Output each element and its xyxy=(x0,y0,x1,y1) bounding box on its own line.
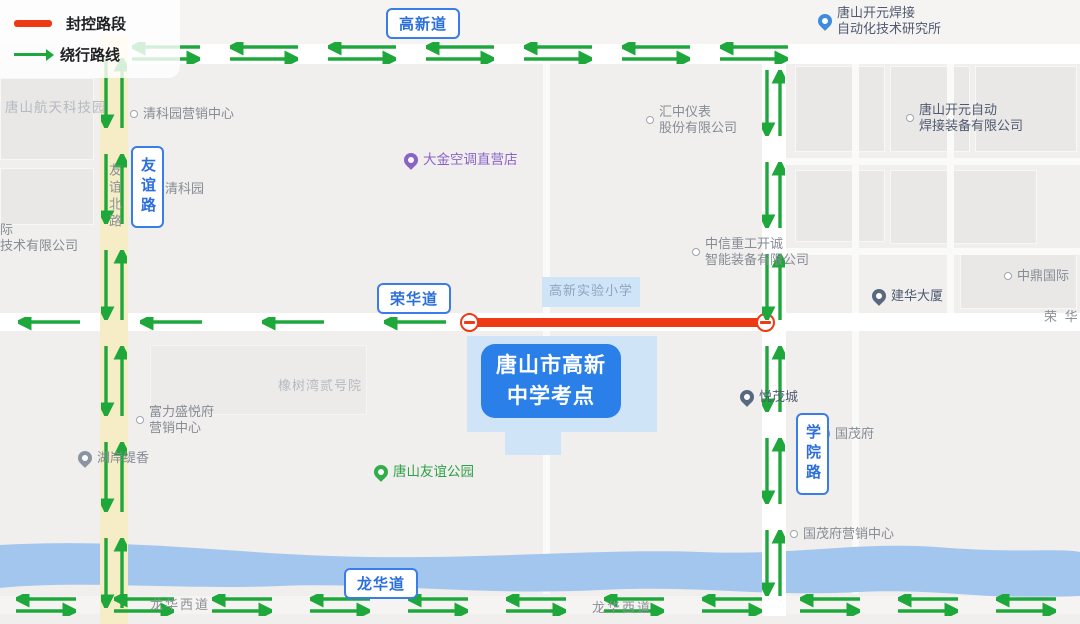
poi-label: 际技术有限公司 xyxy=(0,222,78,254)
exam-site-line2: 中学考点 xyxy=(481,381,621,412)
legend-label: 绕行路线 xyxy=(60,44,120,65)
poi-guomaofu-marketing: 国茂府营销中心 xyxy=(790,526,894,542)
poi-daikin-ac-store: 大金空调直营店 xyxy=(404,152,518,168)
detour-arrow-icon xyxy=(14,53,46,56)
poi-label: 国茂府营销中心 xyxy=(803,526,894,542)
poi-label: 悦茂城 xyxy=(759,389,798,405)
poi-zhongding-international: 中鼎国际 xyxy=(1004,268,1069,284)
poi-label: 唐山航天科技园 xyxy=(5,100,107,116)
poi-label: 建华大厦 xyxy=(891,288,943,304)
dot-marker-icon xyxy=(130,110,138,118)
poi-left-edge-partial: 际技术有限公司 xyxy=(0,222,78,254)
closed-road-swatch-icon xyxy=(14,20,52,27)
poi-label: 国茂府 xyxy=(835,426,874,442)
exam-site-line1: 唐山市高新 xyxy=(481,350,621,381)
map-pin-icon xyxy=(815,11,835,31)
poi-jianhua-tower: 建华大厦 xyxy=(872,288,943,304)
roadname-longhuaxi-west: 龙华西道 xyxy=(150,594,210,613)
poi-label: 清科园 xyxy=(165,181,204,197)
badge-xueyuanlu: 学院路 xyxy=(796,413,829,495)
roadname-youyi-north: 友谊北路 xyxy=(105,163,124,231)
poi-label: 橡树湾贰号院 xyxy=(278,378,362,394)
poi-tangshan-friendship-park: 唐山友谊公园 xyxy=(374,464,474,480)
poi-gaoxin-experimental-primary: 高新实验小学 xyxy=(549,283,633,299)
badge-longhuadao: 龙华道 xyxy=(344,568,418,599)
legend-panel: 封控路段 绕行路线 xyxy=(0,0,180,78)
dot-marker-icon xyxy=(646,116,654,124)
exam-site-badge: 唐山市高新 中学考点 xyxy=(481,344,621,418)
poi-label: 唐山开元自动焊接装备有限公司 xyxy=(919,102,1023,134)
dot-marker-icon xyxy=(790,530,798,538)
poi-label: 高新实验小学 xyxy=(549,283,633,299)
poi-label: 唐山友谊公园 xyxy=(393,464,474,480)
poi-yuemao-city: 悦茂城 xyxy=(740,389,798,405)
badge-gaoxindao: 高新道 xyxy=(386,8,460,39)
map-pin-icon xyxy=(401,150,421,170)
poi-huizhong-instrument: 汇中仪表股份有限公司 xyxy=(646,104,737,136)
poi-citic-hic-kaicheng: 中信重工开诚智能装备有限公司 xyxy=(692,236,809,268)
map-pin-icon xyxy=(75,448,95,468)
poi-tangshan-aerospace-park: 唐山航天科技园 xyxy=(5,100,107,116)
map-pin-icon xyxy=(737,387,757,407)
dot-marker-icon xyxy=(692,248,700,256)
legend-label: 封控路段 xyxy=(66,13,126,34)
poi-label: 湖岸缇香 xyxy=(97,450,149,466)
map-pin-icon xyxy=(869,286,889,306)
poi-label: 唐山开元焊接自动化技术研究所 xyxy=(837,5,941,37)
poi-label: 大金空调直营店 xyxy=(423,152,518,168)
roadname-longhuaxi-east: 龙华西道 xyxy=(592,597,652,616)
poi-xiangshuwan-no2: 橡树湾贰号院 xyxy=(278,378,362,394)
poi-label: 中信重工开诚智能装备有限公司 xyxy=(705,236,809,268)
dot-marker-icon xyxy=(1004,272,1012,280)
dot-marker-icon xyxy=(906,114,914,122)
poi-qingkeyuan-marketing: 清科园营销中心 xyxy=(130,106,234,122)
poi-label: 汇中仪表股份有限公司 xyxy=(659,104,737,136)
poi-huan-tixiang: 湖岸缇香 xyxy=(78,450,149,466)
poi-kaiyuan-welding-equipment: 唐山开元自动焊接装备有限公司 xyxy=(906,102,1023,134)
poi-label: 富力盛悦府营销中心 xyxy=(149,404,214,436)
legend-closed-road: 封控路段 xyxy=(14,13,126,34)
dot-marker-icon xyxy=(136,416,144,424)
map-canvas: 唐山航天科技园 清科园营销中心 清科园 大金空调直营店 汇中仪表股份有限公司 唐… xyxy=(0,0,1080,624)
poi-qingkeyuan: 清科园 xyxy=(165,181,204,197)
legend-detour-route: 绕行路线 xyxy=(14,44,120,65)
poi-fuli-shengyuefu-marketing: 富力盛悦府营销中心 xyxy=(136,404,214,436)
badge-ronghuadao: 荣华道 xyxy=(377,283,451,314)
roadname-ronghua-east: 荣 华 xyxy=(1044,306,1080,325)
badge-youyilu: 友谊路 xyxy=(131,146,164,228)
map-pin-icon xyxy=(371,462,391,482)
poi-kaiyuan-welding-institute: 唐山开元焊接自动化技术研究所 xyxy=(818,5,941,37)
poi-label: 中鼎国际 xyxy=(1017,268,1069,284)
detour-arrows-layer xyxy=(0,0,1080,624)
poi-label: 清科园营销中心 xyxy=(143,106,234,122)
